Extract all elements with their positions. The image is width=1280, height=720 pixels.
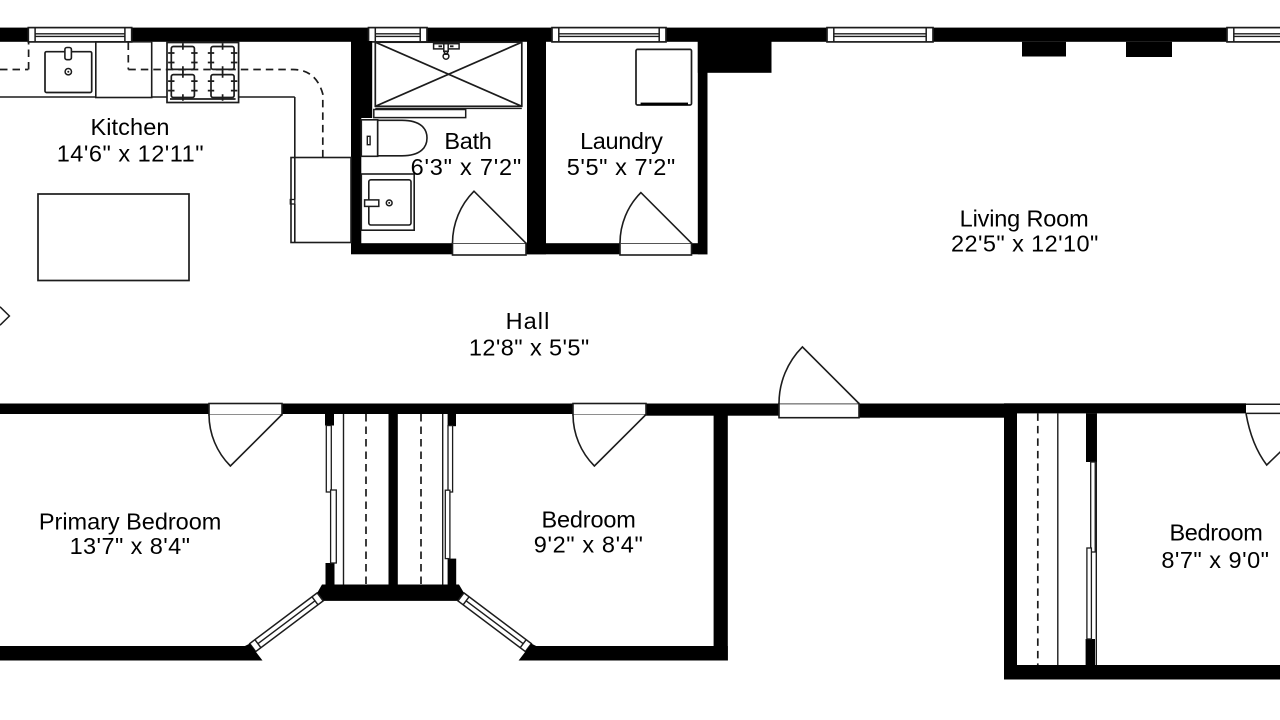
svg-text:12'8" x 5'5": 12'8" x 5'5" (469, 335, 590, 361)
svg-text:Bath: Bath (444, 128, 491, 154)
svg-text:13'7" x 8'4": 13'7" x 8'4" (70, 533, 191, 559)
svg-text:22'5" x 12'10": 22'5" x 12'10" (951, 230, 1099, 256)
svg-text:Living Room: Living Room (960, 205, 1089, 231)
svg-text:14'6" x 12'11": 14'6" x 12'11" (57, 141, 204, 167)
svg-text:Laundry: Laundry (580, 128, 663, 154)
svg-text:9'2" x 8'4": 9'2" x 8'4" (534, 532, 644, 558)
svg-text:6'3" x 7'2": 6'3" x 7'2" (411, 154, 522, 180)
svg-text:Hall: Hall (506, 308, 551, 334)
svg-text:Primary Bedroom: Primary Bedroom (39, 509, 221, 535)
svg-text:Kitchen: Kitchen (90, 114, 169, 140)
svg-text:Bedroom: Bedroom (1169, 520, 1262, 546)
svg-text:5'5" x 7'2": 5'5" x 7'2" (567, 154, 676, 180)
svg-text:Bedroom: Bedroom (542, 506, 636, 532)
svg-text:8'7" x 9'0": 8'7" x 9'0" (1161, 547, 1269, 573)
